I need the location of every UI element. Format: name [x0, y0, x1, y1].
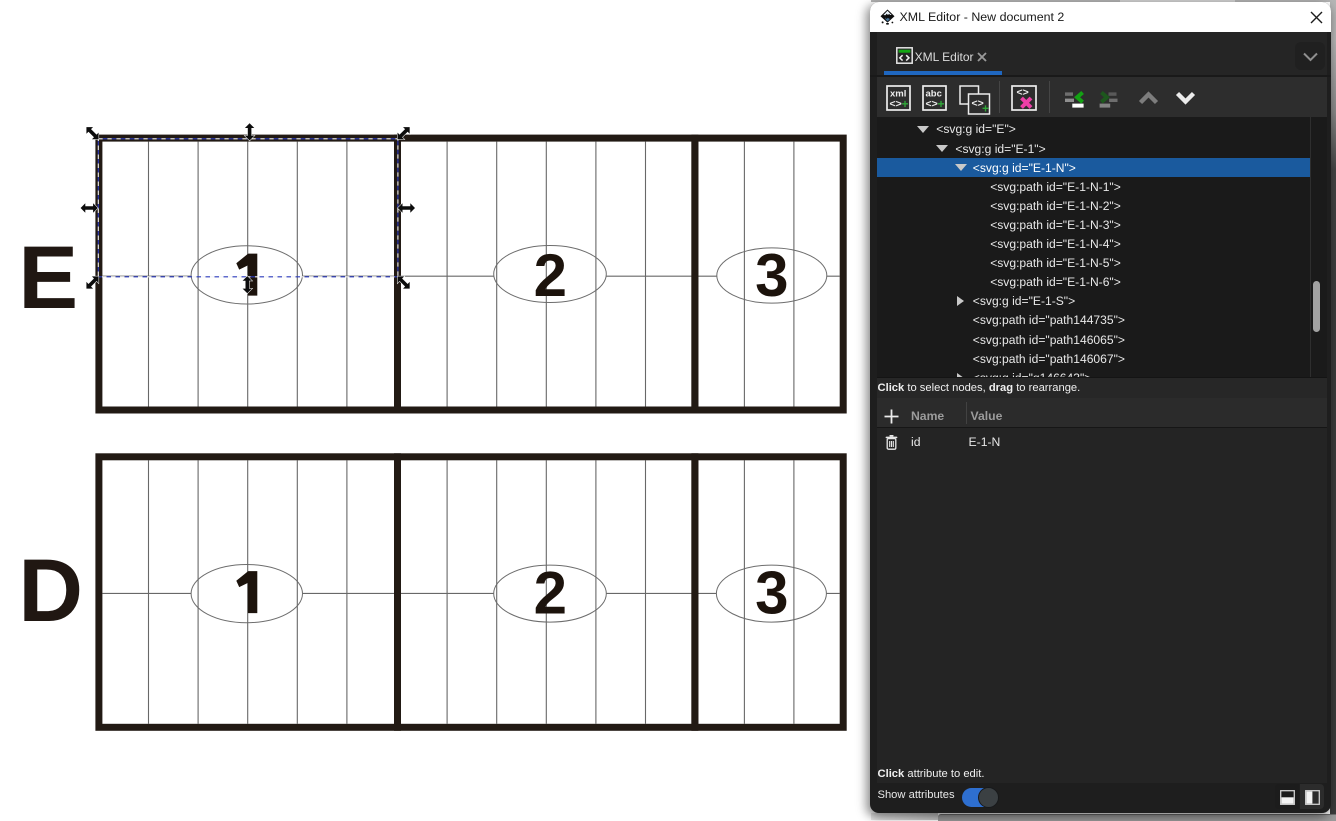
svg-text:D: D — [18, 540, 83, 640]
svg-text:<>: <> — [1016, 87, 1028, 99]
svg-text:+: + — [938, 97, 945, 111]
svg-text:2: 2 — [534, 242, 567, 309]
svg-text:3: 3 — [755, 560, 788, 627]
svg-text:+: + — [982, 102, 989, 116]
svg-text:E: E — [18, 227, 78, 327]
svg-text:2: 2 — [534, 560, 567, 627]
svg-text:+: + — [901, 97, 908, 111]
svg-text:<>: <> — [926, 98, 938, 110]
svg-text:<>: <> — [889, 98, 901, 110]
svg-text:3: 3 — [755, 242, 788, 309]
